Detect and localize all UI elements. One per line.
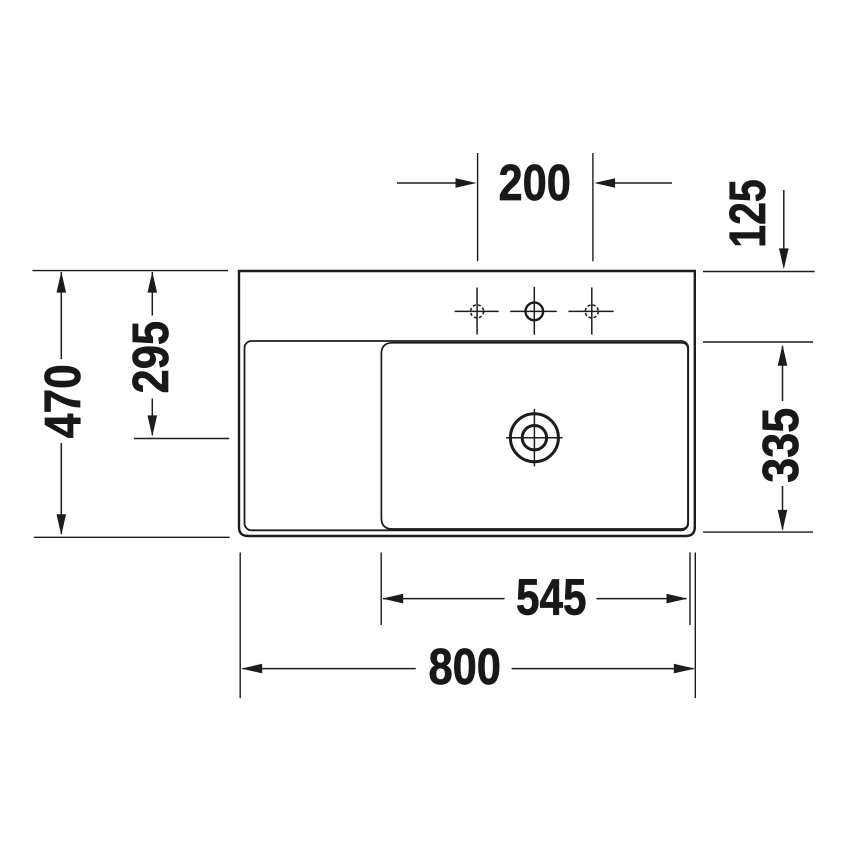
svg-text:200: 200 <box>498 154 571 211</box>
svg-text:545: 545 <box>516 569 587 626</box>
svg-text:125: 125 <box>719 179 776 248</box>
svg-text:800: 800 <box>428 638 501 695</box>
svg-text:295: 295 <box>122 321 179 394</box>
svg-text:470: 470 <box>34 364 91 438</box>
svg-text:335: 335 <box>752 408 809 483</box>
